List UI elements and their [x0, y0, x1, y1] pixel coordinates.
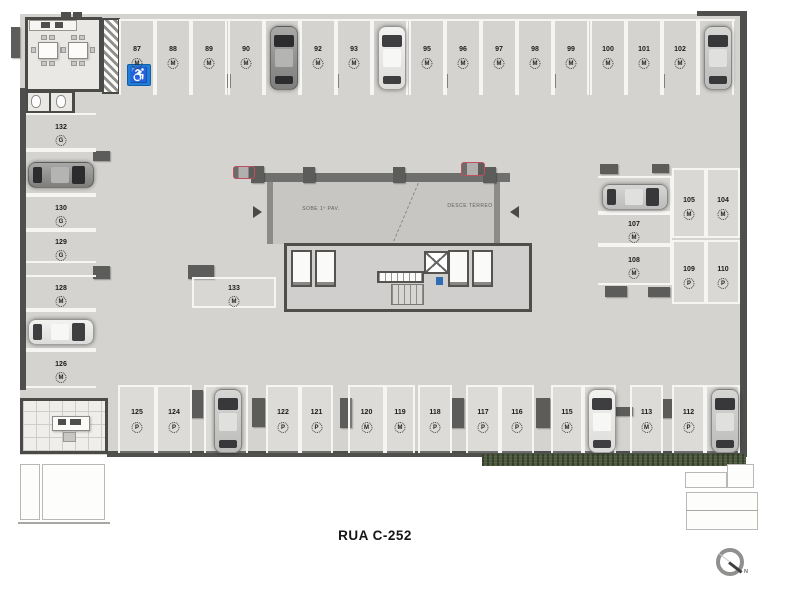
parking-space-94: 94M [372, 20, 408, 95]
space-type-badge: P [132, 422, 143, 433]
car-glass-f [218, 398, 238, 410]
parking-space-107: 107M [598, 213, 672, 245]
space-number: 129 [26, 239, 96, 247]
parked-car [28, 162, 94, 188]
garage-floor-plan: 87M♿88M89M90M91M92M93M94M95M96M97M98M99M… [0, 0, 800, 604]
car-glass-f [708, 35, 728, 47]
parking-space-126: 126M [26, 350, 96, 388]
car-glass-r [219, 440, 237, 448]
parking-space-113: 113M [630, 385, 663, 453]
space-type-badge: G [56, 250, 67, 261]
space-number: 108 [598, 257, 670, 265]
space-number: 87 [121, 46, 153, 54]
car-glass-r [33, 324, 41, 340]
parked-car [602, 184, 668, 210]
ramp-down-label: DESCE TÉRREO [428, 203, 512, 209]
parking-space-92: 92M [300, 20, 336, 95]
space-number: 98 [519, 46, 551, 54]
space-type-badge: M [641, 422, 652, 433]
space-number: 110 [708, 266, 738, 274]
parked-car [711, 389, 739, 453]
parking-space-100: 100M [590, 20, 626, 95]
space-type-badge: M [313, 58, 324, 69]
parked-car [588, 389, 616, 453]
car-roof [593, 413, 611, 431]
car-glass-r [383, 76, 401, 84]
space-type-badge: M [629, 232, 640, 243]
parking-space-104: 104M [706, 168, 740, 238]
space-number: 118 [420, 409, 450, 417]
parking-space-130: 130G [26, 195, 96, 230]
space-type-badge: P [512, 422, 523, 433]
parking-space-114: 114M [583, 385, 616, 453]
parking-space-122: 122P [266, 385, 300, 453]
space-type-badge: M [530, 58, 541, 69]
parking-space-105: 105M [672, 168, 706, 238]
parked-car [28, 319, 94, 345]
space-number: 112 [674, 409, 703, 417]
parking-space-95: 95M [409, 20, 445, 95]
parked-car [270, 26, 298, 90]
parking-space-88: 88M [155, 20, 191, 95]
space-type-badge: M [494, 58, 505, 69]
car-roof [51, 324, 70, 340]
parking-space-90: 90M [228, 20, 264, 95]
parking-space-120: 120M [348, 385, 385, 453]
car-glass-f [274, 35, 294, 47]
car-glass-r [33, 167, 41, 183]
parking-space-123: 123P [204, 385, 248, 453]
space-type-badge: M [349, 58, 360, 69]
parked-car [704, 26, 732, 90]
space-number: 88 [157, 46, 189, 54]
space-number: 120 [350, 409, 383, 417]
space-type-badge: M [629, 268, 640, 279]
space-number: 124 [158, 409, 190, 417]
space-type-badge: P [683, 422, 694, 433]
space-number: 125 [120, 409, 154, 417]
wheelchair-glyph: ♿ [130, 67, 149, 84]
space-type-badge: M [603, 58, 614, 69]
space-type-badge: M [395, 422, 406, 433]
space-number: 99 [555, 46, 587, 54]
parking-space-129: 129G [26, 230, 96, 263]
parking-space-89: 89M [191, 20, 227, 95]
parking-space-111: 111P [705, 385, 740, 453]
parking-space-115: 115M [551, 385, 583, 453]
car-roof [51, 167, 70, 183]
space-number: 89 [193, 46, 225, 54]
parking-space-117: 117P [466, 385, 500, 453]
space-number: 116 [502, 409, 532, 417]
parking-space-103: 103M [698, 20, 734, 95]
space-type-badge: M [562, 422, 573, 433]
parking-space-91: 91M [264, 20, 300, 95]
space-number: 115 [553, 409, 581, 417]
space-type-badge: M [684, 209, 695, 220]
parking-space-116: 116P [500, 385, 534, 453]
parking-space-132: 132G [26, 113, 96, 150]
space-type-badge: M [675, 58, 686, 69]
space-number: 128 [26, 285, 96, 293]
parking-space-124: 124P [156, 385, 192, 453]
space-number: 132 [26, 124, 96, 132]
space-type-badge: M [56, 296, 67, 307]
space-type-badge: M [168, 58, 179, 69]
car-glass-r [593, 440, 611, 448]
space-number: 122 [268, 409, 298, 417]
space-number: 126 [26, 361, 96, 369]
parking-space-98: 98M [517, 20, 553, 95]
space-number: 105 [674, 197, 704, 205]
space-number: 100 [592, 46, 624, 54]
parking-space-97: 97M [481, 20, 517, 95]
car-glass-f [72, 323, 85, 341]
space-type-badge: M [204, 58, 215, 69]
car-glass-f [646, 188, 659, 206]
space-number: 101 [628, 46, 660, 54]
space-type-badge: G [56, 216, 67, 227]
parking-space-125: 125P [118, 385, 156, 453]
parking-space-108: 108M [598, 245, 672, 285]
space-type-badge: M [229, 296, 240, 307]
parking-space-93: 93M [336, 20, 372, 95]
space-type-badge: M [718, 209, 729, 220]
parking-space-101: 101M [626, 20, 662, 95]
parking-space-131: 131G [26, 150, 96, 195]
compass-north-label: N [744, 569, 748, 575]
car-glass-r [716, 440, 734, 448]
space-number: 130 [26, 205, 96, 213]
parked-car [378, 26, 406, 90]
space-number: 90 [230, 46, 262, 54]
space-number: 133 [194, 285, 274, 293]
car-roof [716, 413, 734, 431]
car-glass-f [715, 398, 735, 410]
car-glass-r [709, 76, 727, 84]
space-number: 93 [338, 46, 370, 54]
parking-space-128: 128M [26, 275, 96, 310]
space-number: 95 [411, 46, 443, 54]
parking-space-133: 133M [192, 277, 276, 308]
car-roof [625, 189, 644, 205]
space-type-badge: P [430, 422, 441, 433]
car-roof [219, 413, 237, 431]
space-type-badge: P [169, 422, 180, 433]
space-number: 97 [483, 46, 515, 54]
car-glass-r [275, 76, 293, 84]
car-glass-f [72, 166, 85, 184]
space-number: 117 [468, 409, 498, 417]
parking-space-119: 119M [385, 385, 415, 453]
car-glass-r [607, 189, 615, 205]
space-type-badge: M [639, 58, 650, 69]
space-type-badge: P [478, 422, 489, 433]
car-roof [383, 49, 401, 67]
space-number: 109 [674, 266, 704, 274]
space-type-badge: M [458, 58, 469, 69]
space-type-badge: M [241, 58, 252, 69]
space-type-badge: M [132, 58, 143, 69]
space-type-badge: M [422, 58, 433, 69]
space-number: 96 [447, 46, 479, 54]
space-type-badge: P [718, 278, 729, 289]
parking-space-87: 87M♿ [119, 20, 155, 95]
parking-space-102: 102M [662, 20, 698, 95]
car-glass-f [592, 398, 612, 410]
parked-car [214, 389, 242, 453]
parking-space-118: 118P [418, 385, 452, 453]
space-number: 92 [302, 46, 334, 54]
space-type-badge: M [361, 422, 372, 433]
space-number: 104 [708, 197, 738, 205]
parking-space-127: 127M [26, 310, 96, 350]
car-roof [275, 49, 293, 67]
space-number: 102 [664, 46, 696, 54]
space-number: 107 [598, 221, 670, 229]
parking-spaces-layer: 87M♿88M89M90M91M92M93M94M95M96M97M98M99M… [0, 0, 800, 604]
space-type-badge: G [56, 135, 67, 146]
street-name-label: RUA C-252 [295, 528, 455, 543]
parking-space-110: 110P [706, 240, 740, 304]
car-roof [709, 49, 727, 67]
space-number: 119 [387, 409, 413, 417]
space-type-badge: M [56, 372, 67, 383]
parking-space-106: 106M [598, 176, 672, 213]
ramp-up-label: SOBE 1º PAV. [290, 206, 352, 212]
space-type-badge: P [684, 278, 695, 289]
parking-space-99: 99M [553, 20, 589, 95]
parking-space-96: 96M [445, 20, 481, 95]
space-number: 113 [632, 409, 661, 417]
space-type-badge: M [566, 58, 577, 69]
car-glass-f [382, 35, 402, 47]
space-type-badge: P [278, 422, 289, 433]
parking-space-109: 109P [672, 240, 706, 304]
parking-space-112: 112P [672, 385, 705, 453]
space-type-badge: P [311, 422, 322, 433]
space-number: 121 [302, 409, 331, 417]
parking-space-121: 121P [300, 385, 333, 453]
